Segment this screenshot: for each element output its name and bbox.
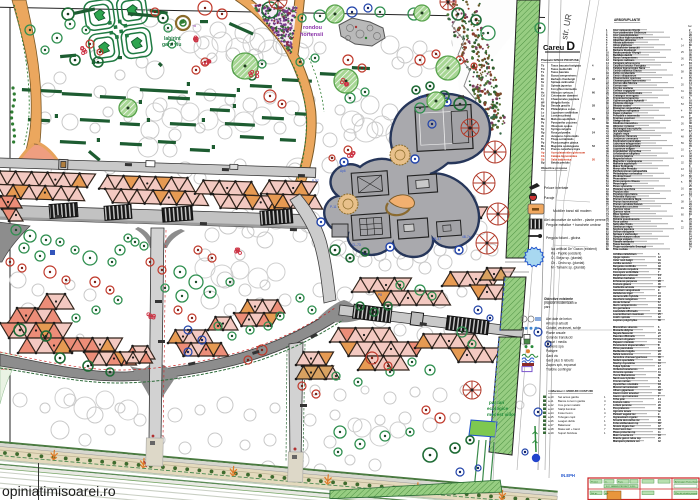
svg-text:Palispre: Palispre [546, 349, 558, 353]
svg-text:Alei dale de beton: Alei dale de beton [546, 317, 572, 321]
svg-text:Arbori si arbusti: Arbori si arbusti [546, 322, 568, 326]
svg-text:Gard viu: Gard viu [546, 354, 558, 358]
svg-text:L1-29: L1-29 [418, 95, 426, 99]
svg-text:modest viilor: modest viilor [487, 412, 516, 417]
svg-text:S.C. GREEN PROJECT S.R.L.: S.C. GREEN PROJECT S.R.L. [606, 486, 636, 488]
svg-text:P-57: P-57 [312, 179, 319, 183]
svg-text:Mobilier banci stil modern: Mobilier banci stil modern [553, 209, 592, 213]
svg-text:M - Tamarix sp. (plantat): M - Tamarix sp. (plantat) [551, 265, 585, 269]
svg-text:hortensii: hortensii [300, 32, 324, 38]
svg-text:Spiraea vanhouttei: Spiraea vanhouttei [551, 80, 574, 84]
svg-text:Pp: Pp [541, 141, 545, 145]
svg-text:Wf: Wf [541, 100, 544, 104]
svg-text:Catalpa bignonioides: Catalpa bignonioides [551, 154, 578, 158]
svg-text:Bp: Bp [541, 161, 545, 165]
svg-text:Obiective propuse: Obiective propuse [541, 166, 568, 170]
svg-text:Sv: Sv [541, 80, 545, 84]
svg-text:a-19: a-19 [548, 431, 554, 435]
svg-text:Pc: Pc [541, 107, 545, 111]
svg-text:P-11: P-11 [330, 205, 337, 209]
svg-text:Plante anuale: Plante anuale [546, 331, 566, 335]
svg-text:Proiect: Proiect [591, 480, 598, 483]
svg-text:Iaz artificial De' Gazon (exi: Iaz artificial De' Gazon (existent) [551, 247, 597, 251]
svg-text:P8: P8 [378, 293, 382, 297]
svg-text:CB-47: CB-47 [432, 237, 441, 241]
svg-text:Pergole metalice + banchete um: Pergole metalice + banchete umbrar [546, 223, 602, 227]
svg-text:Cb: Cb [541, 154, 545, 158]
svg-text:4B-7a: 4B-7a [462, 235, 471, 239]
svg-text:Suport biciclete: Suport biciclete [558, 431, 578, 435]
svg-text:rondou: rondou [303, 25, 322, 31]
svg-text:Cosuri / media: Cosuri / media [546, 340, 567, 344]
svg-text:Alei decorative de schifer - p: Alei decorative de schifer - plante pere… [544, 218, 606, 222]
svg-text:ecologice: ecologice [487, 406, 509, 411]
svg-text:Faza: Faza [618, 481, 624, 483]
svg-text:Syringa vulgaris: Syringa vulgaris [551, 127, 572, 131]
svg-text:Weigela florida: Weigela florida [551, 100, 570, 104]
svg-text:Taxus media hilli: Taxus media hilli [551, 67, 572, 71]
svg-text:O - Stejar sp. (plantat): O - Stejar sp. (plantat) [551, 256, 582, 260]
svg-text:nr.: nr. [605, 480, 608, 483]
svg-text:Pn: Pn [541, 147, 545, 151]
svg-text:ARBORI/PLANTE: ARBORI/PLANTE [614, 18, 640, 22]
svg-text:Plan de situatie propus: Plan de situatie propus [675, 492, 698, 495]
svg-text:Gard plus S reburts: Gard plus S reburts [546, 358, 574, 362]
svg-text:Pa - Papilio (existent): Pa - Papilio (existent) [551, 252, 581, 256]
svg-text:Philadelphus coron.: Philadelphus coron. [551, 107, 576, 111]
svg-text:Picea pungens glauca: Picea pungens glauca [551, 141, 579, 145]
svg-text:Cd: Cd [541, 94, 545, 98]
svg-text:Sef pr.: Sef pr. [591, 492, 598, 495]
svg-text:Colande translucid: Colande translucid [546, 335, 573, 339]
svg-text:+a: +a [192, 24, 196, 28]
svg-text:Zapors spb, expumat: Zapors spb, expumat [546, 363, 576, 367]
svg-text:Cotatie, vecinezei, schije: Cotatie, vecinezei, schije [546, 326, 581, 330]
svg-text:CL-73: CL-73 [352, 243, 361, 247]
svg-text:Fi: Fi [541, 87, 544, 91]
svg-text:Plantatii SPECII PROPUSE: Plantatii SPECII PROPUSE [541, 58, 579, 62]
svg-text:Cotoneaster dammeri: Cotoneaster dammeri [551, 94, 578, 98]
svg-text:Peluze inierbate: Peluze inierbate [544, 186, 568, 190]
svg-text:Betula pendula: Betula pendula [551, 161, 570, 165]
svg-text:Buxus sempervirens: Buxus sempervirens [551, 74, 577, 78]
svg-text:parc: parc [544, 305, 551, 309]
svg-text:arh.: arh. [605, 492, 609, 495]
svg-text:Ch - Cedru sp. (plantat): Ch - Cedru sp. (plantat) [551, 261, 584, 265]
svg-text:Pyracantha coccinea: Pyracantha coccinea [551, 120, 577, 124]
svg-text:IN.EPH: IN.EPH [561, 473, 575, 478]
svg-text:Ap6: Ap6 [340, 169, 346, 173]
svg-text:Lp: Lp [541, 114, 545, 118]
svg-text:Forsythia intermedia: Forsythia intermedia [551, 87, 577, 91]
svg-text:Jh: Jh [541, 134, 544, 138]
svg-text:opiniatimisoarei.ro: opiniatimisoarei.ro [2, 483, 116, 499]
svg-text:Trafohe confingler: Trafohe confingler [546, 368, 573, 372]
svg-text:Juniperus horizontalis: Juniperus horizontalis [551, 134, 579, 138]
svg-text:Sy: Sy [541, 127, 545, 131]
svg-text:Bs: Bs [541, 74, 545, 78]
svg-text:Pergola foliant - glicina: Pergola foliant - glicina [546, 236, 580, 240]
svg-text:Papions spa: Papions spa [546, 345, 564, 349]
svg-text:Py: Py [541, 120, 545, 124]
svg-text:Amenajare Parcul Soarelui: Amenajare Parcul Soarelui [675, 480, 700, 483]
svg-text:Lonicera pileata: Lonicera pileata [551, 114, 571, 118]
svg-text:<<Marime>> MODURI COSTURI: <<Marime>> MODURI COSTURI [548, 389, 593, 393]
svg-text:Prunus cerasifera nigra: Prunus cerasifera nigra [551, 147, 581, 151]
svg-text:Pavaje: Pavaje [544, 196, 554, 200]
